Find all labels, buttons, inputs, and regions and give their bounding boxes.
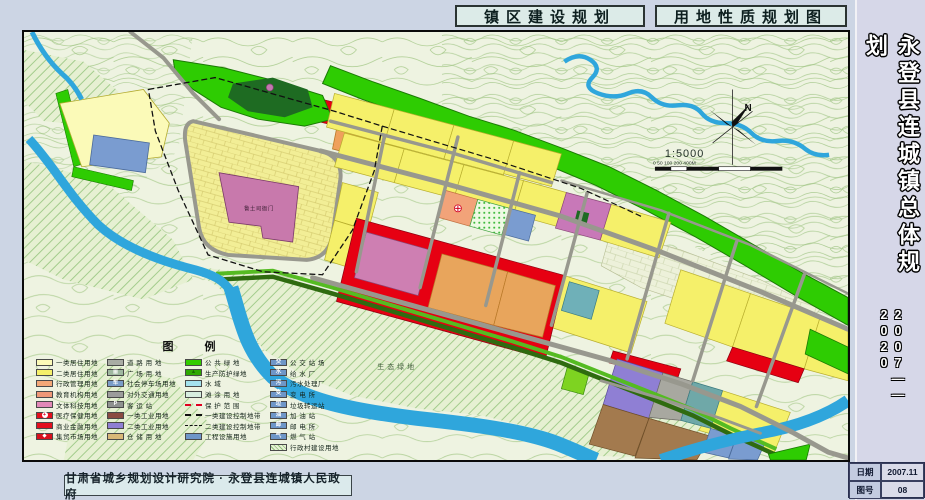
legend-item: 商业金融用地 [36, 421, 98, 432]
legend-item: 水 域 [185, 378, 261, 389]
eco-green-label: 生态绿地 [377, 362, 417, 371]
sheet-label: 图号 [849, 481, 881, 499]
legend-item: 对外交通用地 [107, 389, 176, 400]
legend-item: ◆集贸市场用地 [36, 431, 98, 442]
legend-item: 邮邮 电 所 [270, 421, 339, 432]
legend-symbol: 邮 [276, 423, 282, 429]
legend-chip: 车 [107, 380, 124, 387]
date-label: 日期 [849, 463, 881, 481]
plan-period: 2007——2020 [877, 308, 905, 464]
legend-chip [107, 412, 124, 419]
legend-label: 变 电 所 [290, 389, 316, 399]
legend-label: 仓 储 用 地 [127, 431, 162, 441]
legend-item: 垃垃圾转运站 [270, 399, 339, 410]
legend-item: 油加 油 站 [270, 410, 339, 421]
map-title-secondary-text: 用地性质规划图 [674, 6, 828, 27]
legend-label: 文体科技用地 [56, 400, 98, 410]
legend-symbol: 水 [276, 370, 282, 376]
legend-item: 气燃 气 站 [270, 431, 339, 442]
legend-label: 生产防护绿地 [205, 368, 247, 378]
legend-item: P客 运 站 [107, 399, 176, 410]
plan-sheet: 镇区建设规划 用地性质规划图 [0, 0, 925, 500]
title-block-table: 日期 2007.11 图号 08 [848, 462, 925, 498]
legend-label: 加 油 站 [290, 410, 316, 420]
legend-chip [185, 412, 202, 419]
legend-chip: 变 [270, 391, 287, 398]
sheet-title-vertical: 永登县连城镇总体规划 [859, 34, 923, 298]
legend-item: 文体科技用地 [36, 399, 98, 410]
legend-item: 保 护 范 围 [185, 399, 261, 410]
legend-item: ▲生产防护绿地 [185, 368, 261, 379]
legend-symbol: 气 [276, 434, 282, 440]
legend-chip: 垃 [270, 401, 287, 408]
legend-item: 工程设施用地 [185, 431, 261, 442]
legend-symbol: 垃 [276, 402, 282, 408]
map-title-secondary: 用地性质规划图 [655, 5, 847, 27]
legend-chip [36, 391, 53, 398]
legend-item: 仓 储 用 地 [107, 431, 176, 442]
legend-label: 给 水 厂 [290, 368, 316, 378]
legend-chip: 邮 [270, 422, 287, 429]
legend-chip [36, 359, 53, 366]
legend-label: 行政村建设用地 [290, 442, 339, 452]
legend-label: 水 域 [205, 378, 221, 388]
legend-chip [185, 391, 202, 398]
legend-label: 二类居住用地 [56, 368, 98, 378]
legend-label: 污水处理厂 [290, 378, 325, 388]
legend-label: 一类建设控制地带 [205, 410, 261, 420]
legend-chip: + [36, 412, 53, 419]
legend-column: 一类居住用地二类居住用地行政管理用地教育机构用地文体科技用地+医疗保健用地商业金… [36, 357, 98, 452]
legend-label: 社会停车场用地 [127, 378, 176, 388]
legend-symbol: 污 [276, 381, 282, 387]
legend-chip: P [107, 401, 124, 408]
north-label: N [745, 103, 752, 114]
legend-label: 二类建设控制地带 [205, 421, 261, 431]
legend-item: +医疗保健用地 [36, 410, 98, 421]
credit-text: 甘肃省城乡规划设计研究院 · 永登县连城镇人民政府 [65, 470, 351, 500]
sidebar: 永登县连城镇总体规划 2007——2020 [855, 0, 925, 500]
legend-chip [185, 380, 202, 387]
legend-symbol: 油 [276, 413, 282, 419]
legend-label: 邮 电 所 [290, 421, 316, 431]
legend-chip [36, 369, 53, 376]
legend-item: 行政村建设用地 [270, 442, 339, 453]
legend-label: 一类居住用地 [56, 357, 98, 367]
legend-item: 行政管理用地 [36, 378, 98, 389]
legend-label: 教育机构用地 [56, 389, 98, 399]
legend-chip [36, 401, 53, 408]
legend-label: 集贸市场用地 [56, 431, 98, 441]
sheet-value: 08 [881, 481, 924, 499]
legend-symbol: 交 [276, 360, 282, 366]
legend-label: 广 场 用 地 [127, 368, 162, 378]
legend-chip [107, 391, 124, 398]
legend-chip [185, 359, 202, 366]
legend-chip: 交 [270, 359, 287, 366]
legend-chip [185, 422, 202, 429]
legend-label: 一类工业用地 [127, 410, 169, 420]
legend-symbol: P [114, 402, 118, 408]
temple-dot [266, 84, 273, 91]
legend-chip: 油 [270, 412, 287, 419]
legend-chip [185, 433, 202, 440]
legend-label: 行政管理用地 [56, 378, 98, 388]
legend-label: 工程设施用地 [205, 431, 247, 441]
legend-label: 滩 涂 用 地 [205, 389, 240, 399]
legend-label: 医疗保健用地 [56, 410, 98, 420]
legend-item: 污污水处理厂 [270, 378, 339, 389]
legend-item: 公 共 绿 地 [185, 357, 261, 368]
map-title-primary-text: 镇区建设规划 [484, 6, 616, 27]
legend-chip [185, 401, 202, 408]
legend-item: 一类工业用地 [107, 410, 176, 421]
legend-symbol: ▦ [113, 370, 118, 376]
legend-label: 保 护 范 围 [205, 400, 240, 410]
legend-chip [107, 422, 124, 429]
legend-label: 公 共 绿 地 [205, 357, 240, 367]
legend-label: 垃圾转运站 [290, 400, 325, 410]
legend-column: 交公 交 站 场水给 水 厂污污水处理厂变变 电 所垃垃圾转运站油加 油 站邮邮… [270, 357, 339, 452]
legend-label: 燃 气 站 [290, 431, 316, 441]
legend-label: 商业金融用地 [56, 421, 98, 431]
scale-text: 1:5000 [665, 148, 704, 160]
legend-item: 变变 电 所 [270, 389, 339, 400]
legend-chip: ▦ [107, 369, 124, 376]
legend-symbol: 变 [276, 391, 282, 397]
legend-item: 道 路 用 地 [107, 357, 176, 368]
legend-item: 二类建设控制地带 [185, 421, 261, 432]
legend-chip [36, 380, 53, 387]
legend-chip: 气 [270, 433, 287, 440]
legend-label: 对外交通用地 [127, 389, 169, 399]
legend-symbol: + [42, 412, 48, 418]
legend-columns: 一类居住用地二类居住用地行政管理用地教育机构用地文体科技用地+医疗保健用地商业金… [36, 357, 376, 452]
legend-item: 二类居住用地 [36, 368, 98, 379]
legend-chip [270, 444, 287, 451]
credit-box: 甘肃省城乡规划设计研究院 · 永登县连城镇人民政府 [64, 475, 352, 496]
legend-chip: ◆ [36, 433, 53, 440]
legend-symbol: ◆ [42, 434, 46, 440]
legend-item: 二类工业用地 [107, 421, 176, 432]
legend-item: 滩 涂 用 地 [185, 389, 261, 400]
legend-item: ▦广 场 用 地 [107, 368, 176, 379]
scalebar-labels: 0 50 100 200 400M [653, 161, 696, 167]
legend: 图 例 一类居住用地二类居住用地行政管理用地教育机构用地文体科技用地+医疗保健用… [36, 338, 376, 456]
date-value: 2007.11 [881, 463, 924, 481]
legend-item: 水给 水 厂 [270, 368, 339, 379]
map-panel: 鲁土司衙门 [22, 30, 850, 462]
legend-column: 公 共 绿 地▲生产防护绿地水 域滩 涂 用 地保 护 范 围一类建设控制地带二… [185, 357, 261, 452]
map-title-primary: 镇区建设规划 [455, 5, 645, 27]
legend-item: 车社会停车场用地 [107, 378, 176, 389]
legend-chip [36, 422, 53, 429]
legend-item: 交公 交 站 场 [270, 357, 339, 368]
legend-label: 客 运 站 [127, 400, 153, 410]
legend-chip: 污 [270, 380, 287, 387]
legend-column: 道 路 用 地▦广 场 用 地车社会停车场用地对外交通用地P客 运 站一类工业用… [107, 357, 176, 452]
legend-chip: ▲ [185, 369, 202, 376]
historic-site-label: 鲁土司衙门 [244, 204, 274, 212]
legend-title: 图 例 [86, 338, 306, 354]
legend-label: 二类工业用地 [127, 421, 169, 431]
legend-item: 一类建设控制地带 [185, 410, 261, 421]
legend-label: 公 交 站 场 [290, 357, 325, 367]
legend-chip [107, 433, 124, 440]
legend-chip [107, 359, 124, 366]
legend-item: 一类居住用地 [36, 357, 98, 368]
legend-label: 道 路 用 地 [127, 357, 162, 367]
legend-symbol: 车 [113, 381, 119, 387]
legend-symbol: ▲ [191, 370, 196, 376]
legend-item: 教育机构用地 [36, 389, 98, 400]
legend-chip: 水 [270, 369, 287, 376]
